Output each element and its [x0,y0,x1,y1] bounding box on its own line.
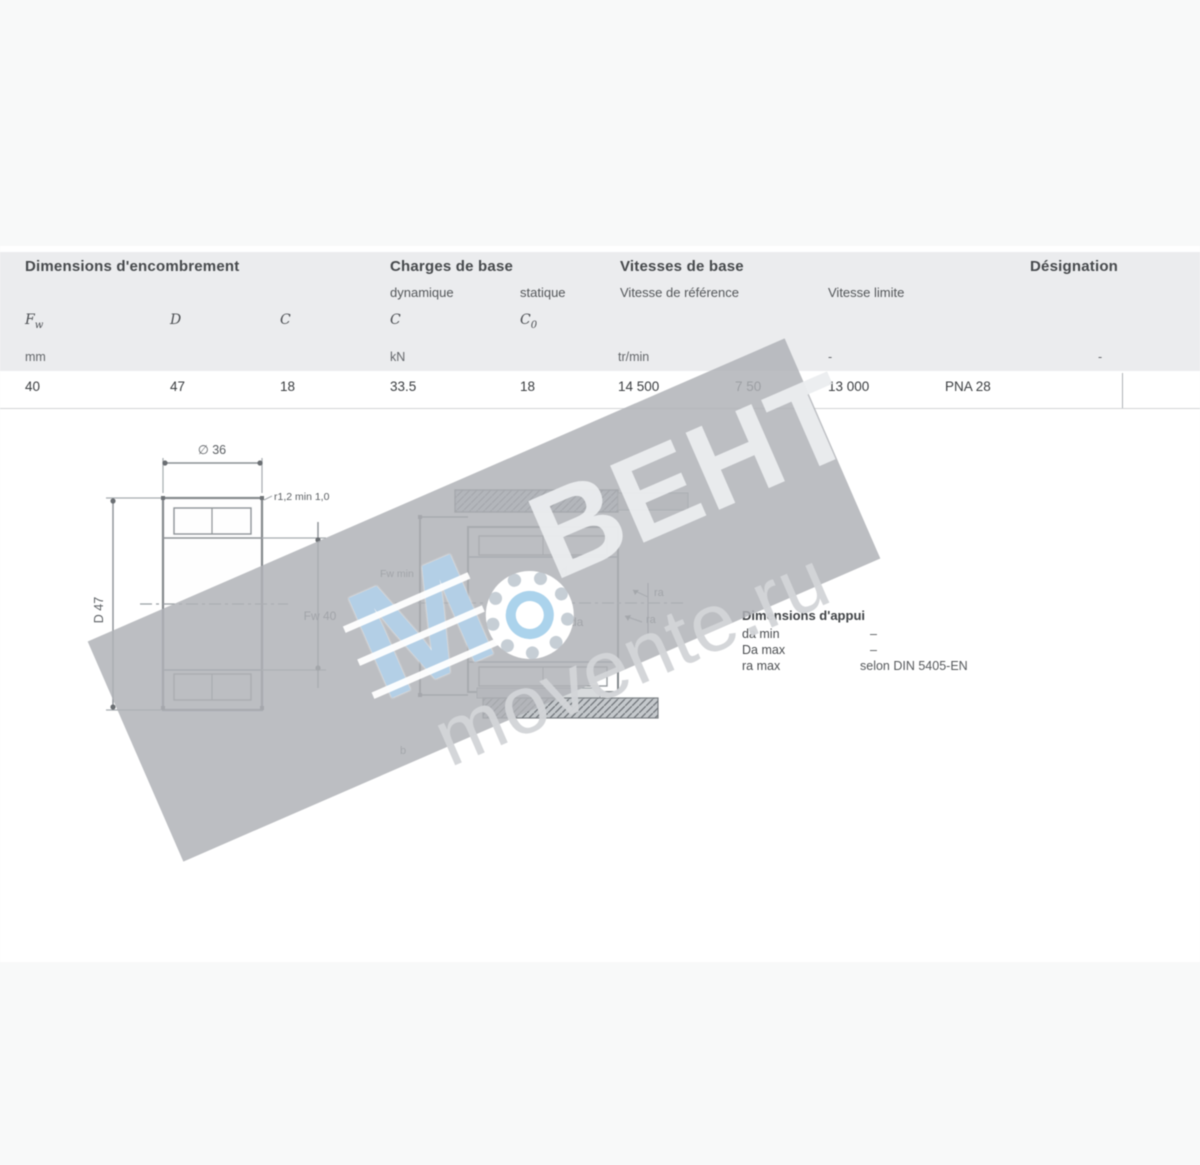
target-inner-ring [498,583,561,646]
cell-c-dyn: 33.5 [390,379,416,394]
cell-fw: 40 [25,379,40,394]
cell-c-stat: 18 [520,379,535,394]
notes-row-value: – [870,643,877,657]
unit-mm: mm [25,350,46,364]
leader-line [264,496,272,500]
group-header-designation: Désignation [1030,258,1118,275]
dim-label-top: ∅ 36 [198,443,226,457]
corner-mark [260,496,264,500]
subheader-dynamic: dynamique [390,285,454,300]
subheader-static: statique [520,285,566,300]
notes-row-value: selon DIN 5405-EN [860,659,968,673]
dim-label-left: D 47 [92,597,106,623]
dim-arrow [162,460,167,465]
notes-row: ra max selon DIN 5405-EN [742,659,1102,675]
unit-dash-mid: - [828,350,832,364]
cell-c: 18 [280,379,295,394]
symbol-d: D [170,312,181,331]
corner-mark [161,496,165,500]
group-header-dimensions: Dimensions d'encombrement [25,258,239,275]
subheader-reference-speed: Vitesse de référence [620,285,739,300]
symbol-c0: C0 [520,312,537,331]
symbol-c: C [280,312,291,331]
group-header-loads: Charges de base [390,258,513,275]
table-row-separator [0,408,1200,409]
unit-kn: kN [390,350,405,364]
notes-row: Da max – [742,643,1102,659]
cell-d: 47 [170,379,185,394]
chamfer-label: r1,2 min 1,0 [274,491,330,503]
symbol-c-dyn: C [390,312,401,331]
dim-arrow [110,498,115,503]
unit-rpm: tr/min [618,350,649,364]
group-header-speeds: Vitesses de base [620,258,744,275]
notes-row-value: – [870,627,877,641]
notes-row-label: ra max [742,659,780,673]
cell-v-ref: 14 500 [618,379,659,394]
datasheet-page: Dimensions d'encombrement Charges de bas… [0,0,1200,1165]
subheader-limiting-speed: Vitesse limite [828,285,904,300]
unit-dash-right: - [1098,350,1102,364]
table-border-tick [1122,373,1123,408]
dim-arrow [257,460,262,465]
symbol-fw: Fw [25,312,43,331]
cell-designation: PNA 28 [945,379,991,394]
